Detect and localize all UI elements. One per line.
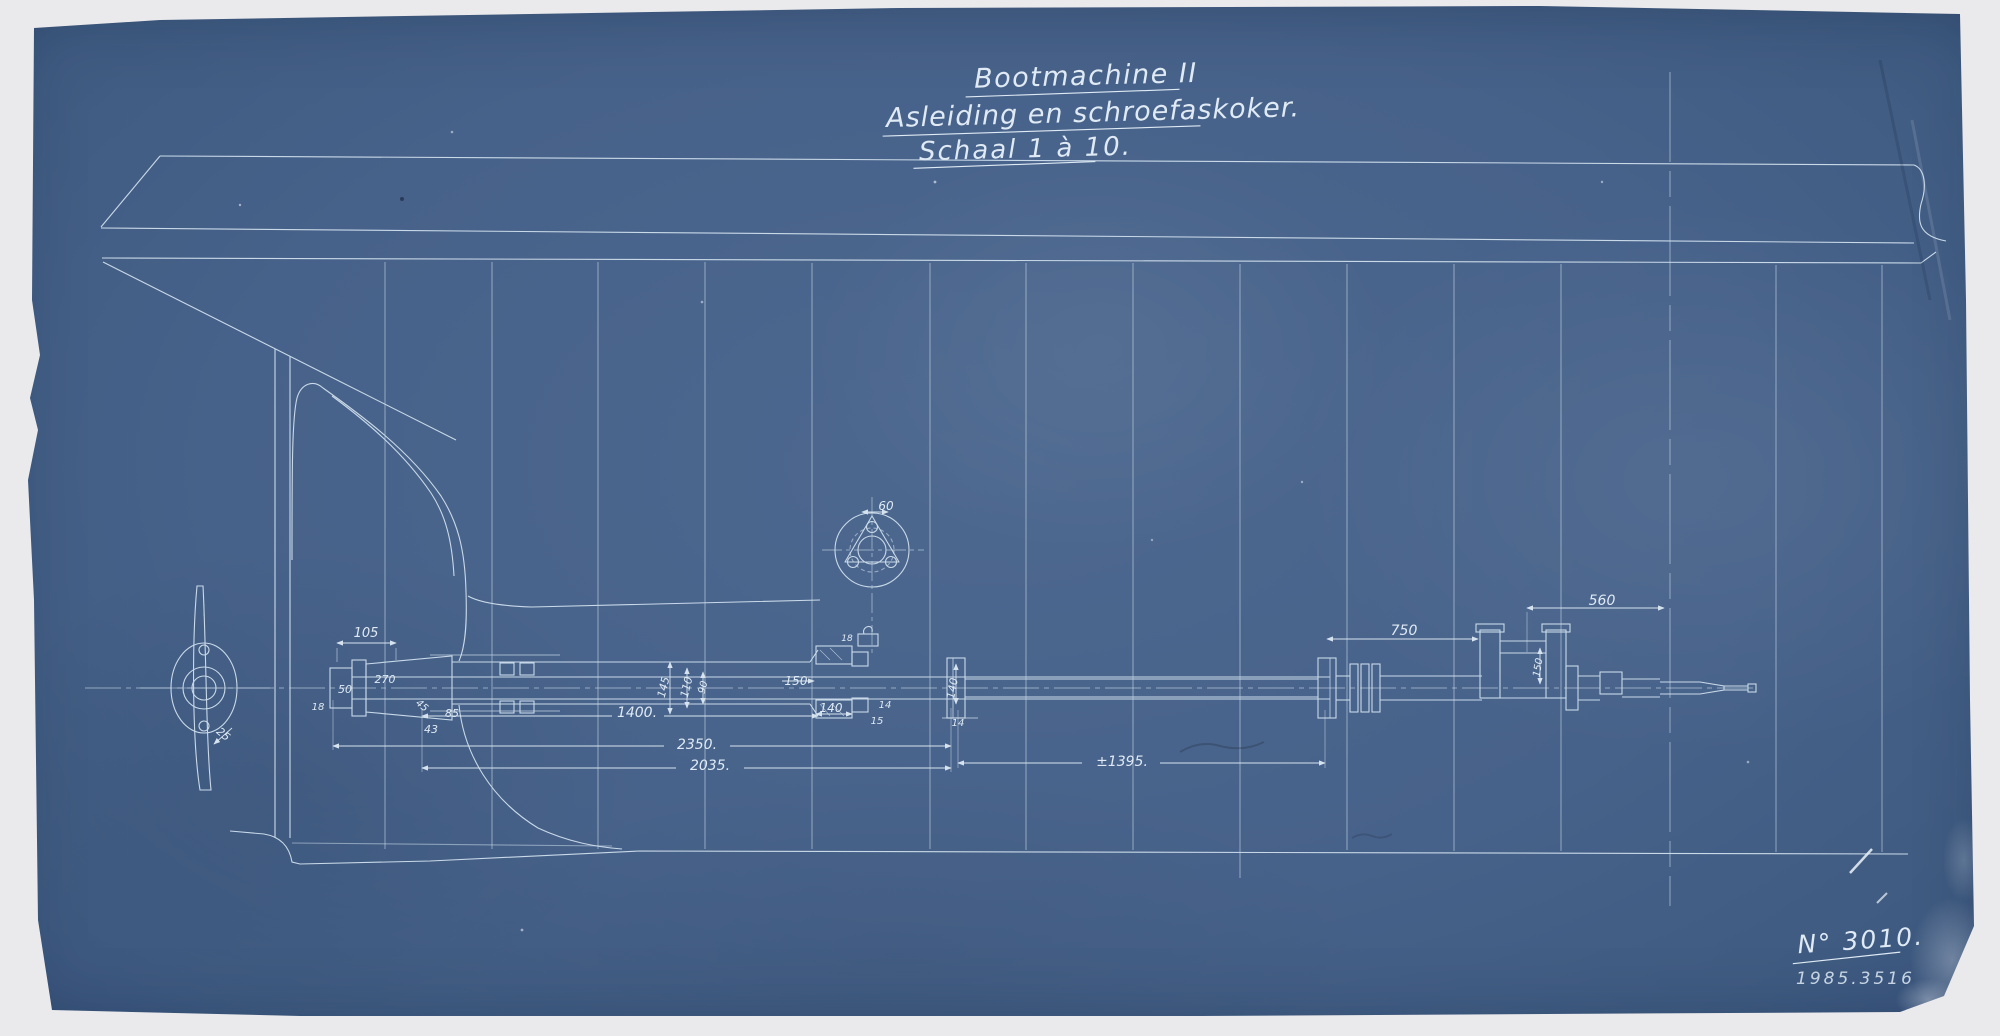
plummer-block xyxy=(1476,624,1570,698)
thrust-collars xyxy=(1336,664,1482,712)
dim-label: 750 xyxy=(1391,623,1418,639)
dim-label: 150 xyxy=(785,674,808,688)
counter-diagonal xyxy=(103,262,456,440)
dim-label: 140 xyxy=(944,677,960,700)
dim-label: 1400. xyxy=(617,705,657,721)
dim-label: 60 xyxy=(878,499,894,513)
dim-label: 2350. xyxy=(677,737,717,753)
dim-label: 105 xyxy=(354,626,379,641)
title-line-2: Asleiding en schroefaskoker. xyxy=(884,92,1301,134)
dim-label: 560 xyxy=(1589,593,1616,609)
dim-label: 18 xyxy=(312,702,325,713)
dim-label: 43 xyxy=(424,723,438,736)
dim-label: ±1395. xyxy=(1096,754,1148,770)
dim-label: 14 xyxy=(952,718,965,729)
dim-label: 85 xyxy=(445,707,459,720)
accession-stamp: 1985.3516 xyxy=(1796,969,1915,989)
dim-label: 2035. xyxy=(690,758,730,774)
paper-marks xyxy=(239,60,1950,931)
blueprint-scan: 105 50 270 18 45 43 85 25 145 110 90 140… xyxy=(0,0,2000,1036)
drawing-number: N° 3010. xyxy=(1791,921,1926,963)
oil-cup xyxy=(858,634,878,646)
dim-label: 15 xyxy=(871,716,884,727)
dim-label: 140 xyxy=(820,701,843,715)
dim-label: 90 xyxy=(697,680,711,695)
dimension-labels: 105 50 270 18 45 43 85 25 145 110 90 140… xyxy=(214,499,1616,774)
drawing-layer: 105 50 270 18 45 43 85 25 145 110 90 140… xyxy=(0,0,2000,1036)
dim-label: 150 xyxy=(1531,657,1545,678)
dim-label: 110 xyxy=(678,675,696,699)
dim-label: 18 xyxy=(841,634,853,644)
flange-detail-view xyxy=(822,497,924,655)
title-line-3: Schaal 1 à 10. xyxy=(919,132,1133,168)
accession-stamp-text: 1985.3516 xyxy=(1796,969,1915,989)
dim-label: 45 xyxy=(413,698,430,715)
frame-lines xyxy=(385,72,1882,906)
title-line-1: Bootmachine II xyxy=(974,58,1198,95)
dim-label: 14 xyxy=(879,700,892,711)
propeller-end-view xyxy=(140,586,270,790)
hull-outline xyxy=(101,156,1946,864)
dim-label: 50 xyxy=(338,683,352,696)
title-block: Bootmachine II Asleiding en schroefaskok… xyxy=(881,55,1301,169)
drawing-number-text: N° 3010. xyxy=(1797,921,1925,959)
dim-label: 25 xyxy=(214,725,233,744)
dim-label: 270 xyxy=(375,673,396,686)
dimension-lines xyxy=(333,512,1664,772)
